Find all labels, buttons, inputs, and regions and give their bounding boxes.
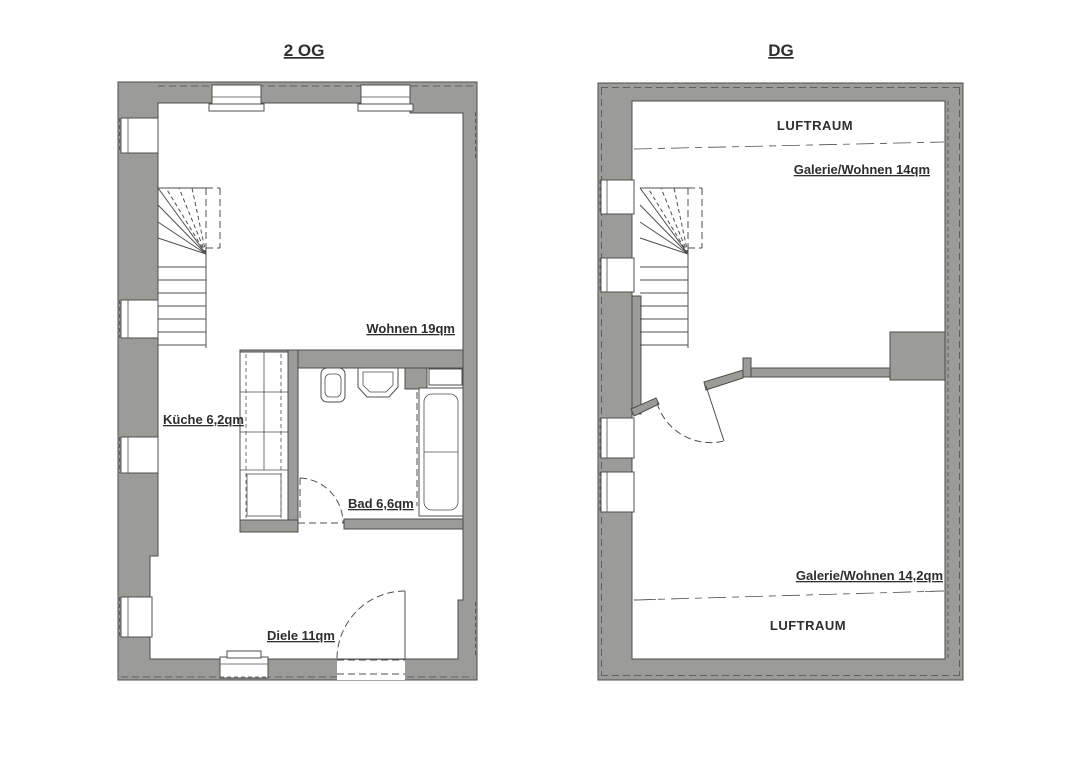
bathtub: [417, 369, 463, 516]
plan-title-2og: 2 OG: [284, 41, 325, 60]
window-left-1-dg: [600, 180, 634, 214]
bathroom-door: [298, 478, 344, 523]
window-top-2-2og: [358, 85, 413, 111]
floorplan-sheet: 2 OG: [0, 0, 1075, 757]
room-label-kueche: Küche 6,2qm: [163, 412, 244, 427]
sink: [358, 368, 398, 397]
label-galerie-bottom: Galerie/Wohnen 14,2qm: [796, 568, 943, 583]
label-luftraum-top: LUFTRAUM: [777, 118, 853, 133]
floorplan-2og: 2 OG: [118, 41, 477, 680]
stair-2og: [158, 188, 220, 348]
toilet: [321, 368, 345, 402]
window-left-1-2og: [120, 118, 159, 153]
floorplan-dg: DG: [598, 41, 963, 680]
window-bottom-2og: [220, 651, 268, 678]
window-left-2-dg: [600, 258, 634, 292]
window-top-1-2og: [209, 85, 264, 111]
window-left-2-2og: [120, 300, 159, 338]
kitchen-counter: [240, 352, 288, 520]
gallery-door-dg: [657, 386, 724, 443]
window-left-4-2og: [120, 597, 153, 637]
room-label-diele: Diele 11qm: [267, 628, 335, 643]
entrance-door: [337, 591, 405, 680]
stair-dg: [640, 188, 702, 348]
label-luftraum-bottom: LUFTRAUM: [770, 618, 846, 633]
window-left-3-dg: [600, 418, 634, 458]
room-label-bad: Bad 6,6qm: [348, 496, 414, 511]
label-galerie-top: Galerie/Wohnen 14qm: [794, 162, 930, 177]
floorplan-canvas: 2 OG: [0, 0, 1075, 757]
window-left-3-2og: [120, 437, 159, 473]
window-left-4-dg: [600, 472, 634, 512]
room-label-wohnen: Wohnen 19qm: [366, 321, 455, 336]
wall-chunk-stair-dg: [632, 296, 641, 414]
plan-title-dg: DG: [768, 41, 794, 60]
